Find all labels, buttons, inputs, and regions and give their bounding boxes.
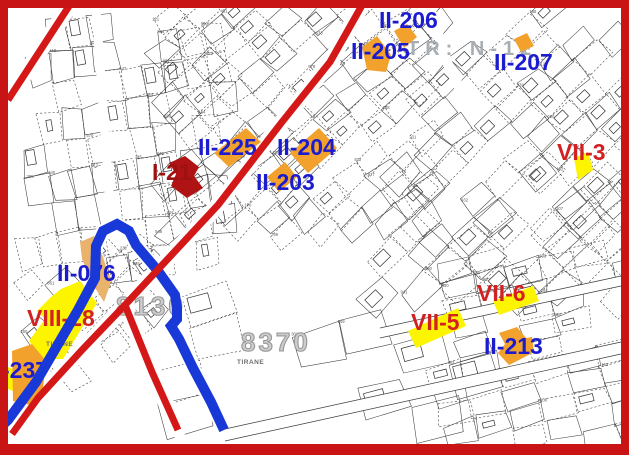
- map-frame-right: [621, 0, 629, 447]
- map-frame-top: [0, 0, 629, 8]
- map-frame-left: [0, 0, 8, 447]
- map-frame-bottom: [0, 444, 629, 455]
- boundary-lines-layer: [0, 0, 629, 455]
- red-road-line-1: [8, 0, 73, 100]
- map-canvas: 3956403187005701125473454648468913648879…: [0, 0, 629, 455]
